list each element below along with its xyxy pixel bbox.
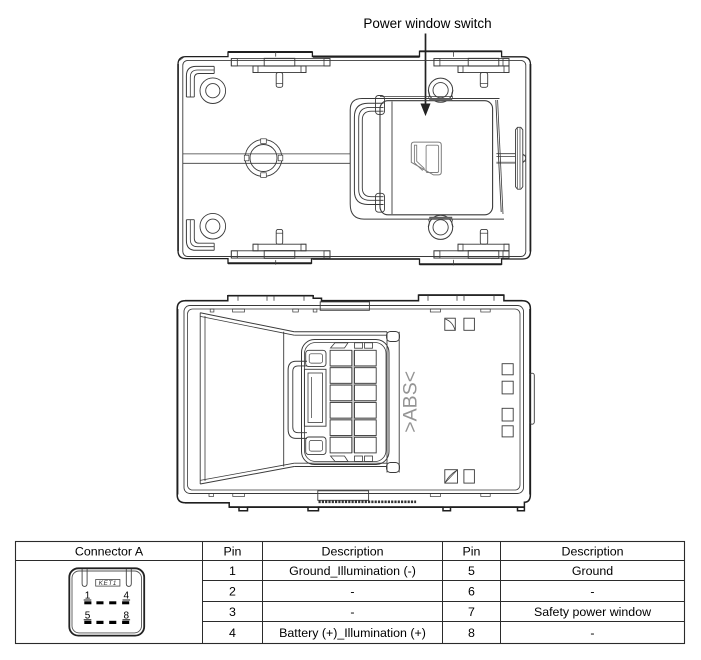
svg-text:8: 8 [468,626,475,640]
svg-text:1: 1 [229,564,236,578]
svg-text:Ground_Illumination (-): Ground_Illumination (-) [289,564,416,578]
svg-text:Power window switch: Power window switch [363,16,491,31]
svg-text:-: - [590,626,594,640]
svg-text:5: 5 [468,564,475,578]
svg-text:6: 6 [468,584,475,598]
svg-text:>ABS<: >ABS< [400,371,422,433]
svg-text:-: - [350,605,354,619]
svg-text:Safety power window: Safety power window [534,605,651,619]
svg-text:KET1: KET1 [99,580,117,587]
svg-text:-: - [350,584,354,598]
svg-text:Connector A: Connector A [75,544,144,558]
svg-text:Description: Description [322,544,384,558]
svg-text:Description: Description [562,544,624,558]
svg-text:Ground: Ground [572,564,613,578]
svg-text:-: - [590,584,594,598]
svg-text:Battery (+)_Illumination (+): Battery (+)_Illumination (+) [279,626,426,640]
svg-text:7: 7 [468,605,475,619]
svg-text:3: 3 [229,605,236,619]
svg-text:2: 2 [229,584,236,598]
svg-text:4: 4 [229,626,236,640]
svg-text:Pin: Pin [463,544,481,558]
svg-text:Pin: Pin [224,544,242,558]
